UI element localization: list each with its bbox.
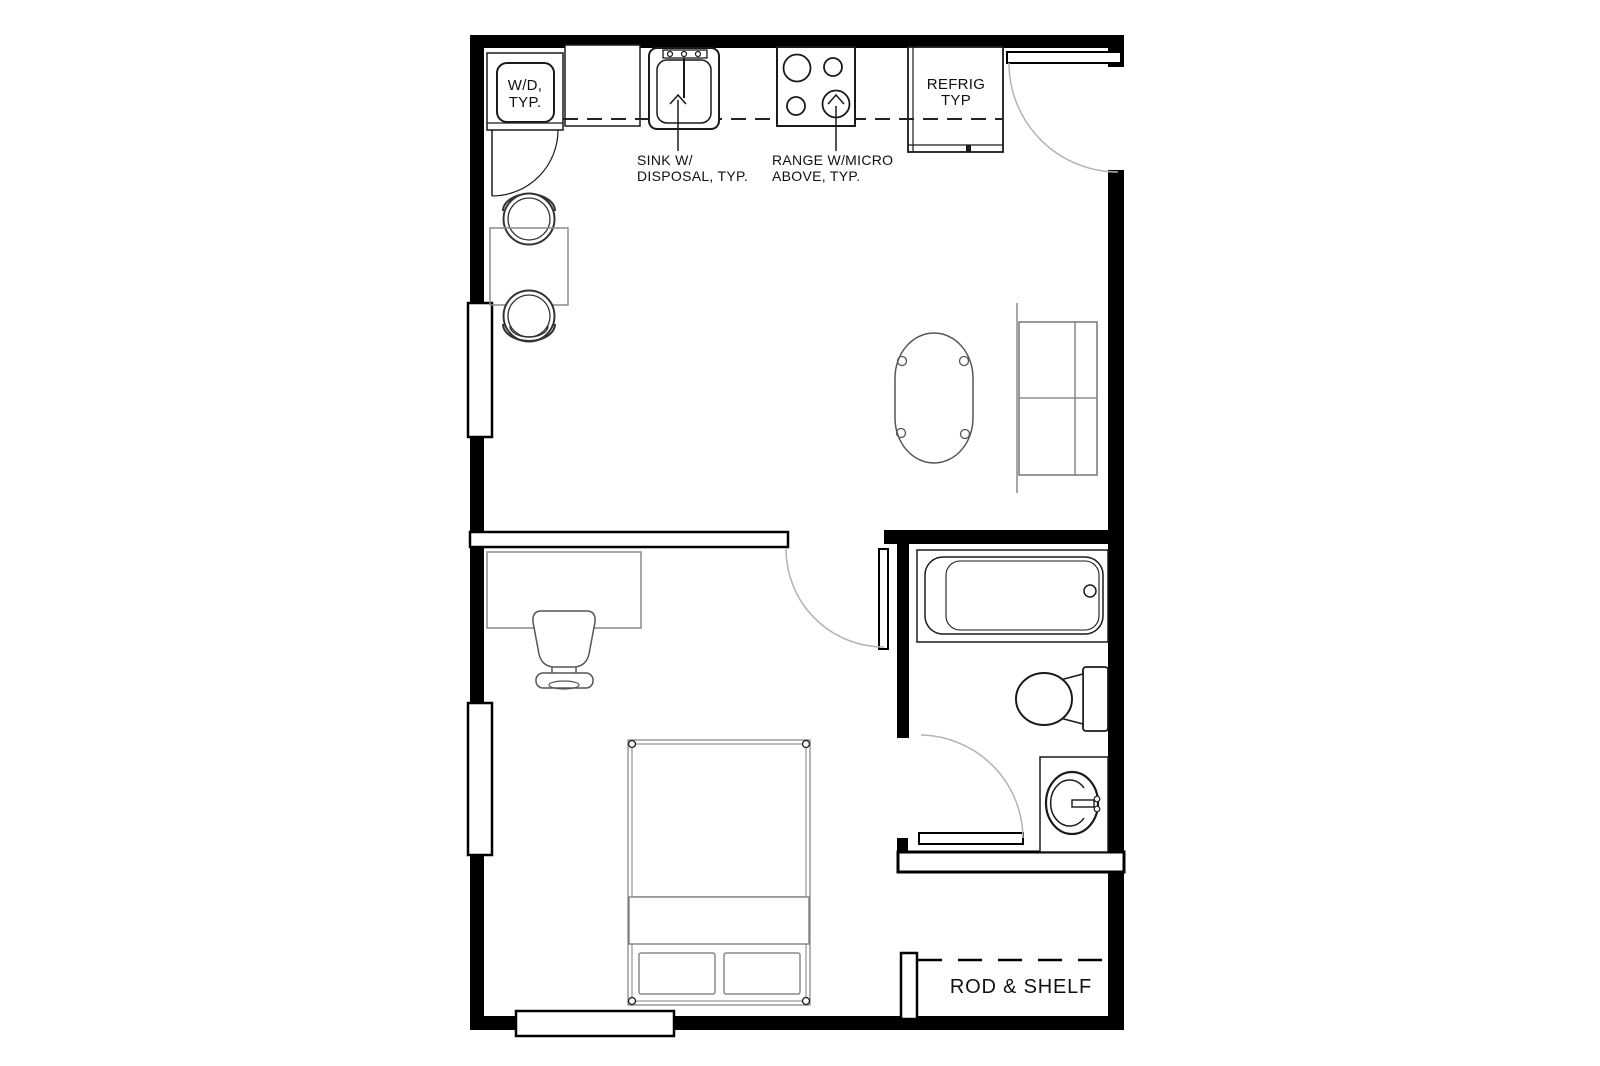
kitchen: W/D, TYP. SINK W/ DISPOSAL, TYP. <box>487 45 1003 184</box>
toilet <box>1016 667 1108 731</box>
floor-plan: W/D, TYP. SINK W/ DISPOSAL, TYP. <box>0 0 1600 1066</box>
entry-door-swing-arc <box>1009 63 1118 172</box>
refrigerator-label-line2: TYP <box>941 92 971 109</box>
bed-post <box>629 741 636 748</box>
desk-chair <box>533 611 595 689</box>
entry-door-leaf <box>1007 52 1121 63</box>
kitchen-sink <box>649 48 719 129</box>
closet-wall-stub <box>901 953 917 1019</box>
bed-post <box>803 998 810 1005</box>
bed <box>628 740 810 1005</box>
sink-label-line2: DISPOSAL, TYP. <box>637 168 748 184</box>
bathroom-closet-divider-wall <box>898 852 1124 872</box>
wd-closet-door <box>492 130 558 196</box>
sink-label-line1: SINK W/ <box>637 152 693 168</box>
bathroom-door-leaf <box>919 833 1023 844</box>
dining-set <box>490 194 568 342</box>
bathroom-wall-left <box>897 543 909 738</box>
bedroom-door-swing-arc <box>786 549 884 647</box>
bed-blanket-fold <box>629 897 809 944</box>
bathroom-door-swing-arc <box>921 735 1023 838</box>
refrigerator-door-tick <box>966 145 971 152</box>
wd-label-line1: W/D, <box>508 77 543 94</box>
bed-post <box>803 741 810 748</box>
living-room <box>895 303 1097 493</box>
floor-plan-drawing: W/D, TYP. SINK W/ DISPOSAL, TYP. <box>0 0 1600 1066</box>
bathroom <box>917 550 1108 852</box>
bedroom <box>487 552 810 1005</box>
wall-right <box>1108 170 1124 1030</box>
bathroom-sink-faucet <box>1072 800 1094 807</box>
sofa <box>1017 303 1097 493</box>
bathtub <box>917 550 1108 642</box>
kitchen-cabinet <box>565 45 640 126</box>
bed-pillow-right <box>724 953 800 994</box>
tub-drain <box>1084 585 1096 597</box>
bed-post <box>629 998 636 1005</box>
washer-dryer-closet: W/D, TYP. <box>487 53 563 130</box>
interior-wall-bedroom <box>470 532 788 547</box>
range-label-line2: ABOVE, TYP. <box>772 168 860 184</box>
range <box>777 47 855 126</box>
toilet-tank <box>1083 667 1108 731</box>
closet: ROD & SHELF <box>918 960 1105 998</box>
bedroom-door-leaf <box>879 549 888 649</box>
dining-chair-top <box>503 194 555 245</box>
window-left-upper <box>468 303 492 437</box>
bathroom-vanity <box>1040 757 1108 852</box>
rod-shelf-label: ROD & SHELF <box>950 976 1092 998</box>
toilet-bowl <box>1016 673 1072 725</box>
oval-table <box>895 333 973 463</box>
bed-pillow-left <box>639 953 715 994</box>
interior-wall-bathroom-top <box>884 530 1124 544</box>
dining-chair-bottom <box>503 291 555 342</box>
wd-door-swing-arc <box>492 130 558 196</box>
window-left-lower <box>468 703 492 855</box>
window-bottom <box>516 1011 674 1036</box>
entry-door <box>1007 52 1121 172</box>
wd-label-line2: TYP. <box>509 94 542 111</box>
bedroom-door <box>786 549 888 649</box>
bathroom-door <box>919 735 1023 844</box>
refrigerator-label-line1: REFRIG <box>927 76 985 93</box>
range-label-line1: RANGE W/MICRO <box>772 152 893 168</box>
